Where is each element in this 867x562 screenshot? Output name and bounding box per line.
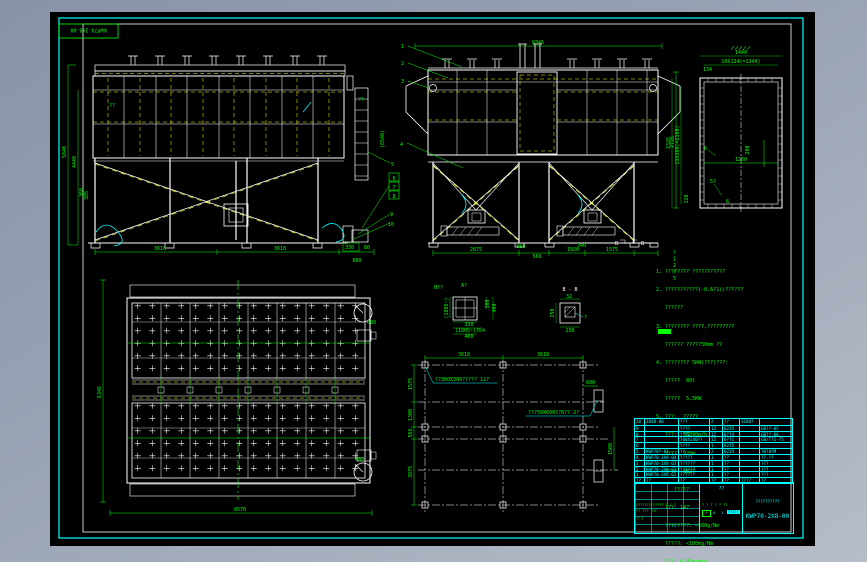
detail-a-flag: H?? [434, 285, 443, 291]
detail-a-label: A? [461, 283, 467, 289]
scale-p-box: P [702, 510, 711, 517]
margin-note-0: ? [673, 250, 676, 256]
dim-a400r: 400 [492, 303, 498, 312]
dim-120: 120 [684, 194, 690, 203]
dim-990: 990 [516, 244, 525, 250]
dim-f3618b: 3618 [537, 352, 549, 358]
note-line: 1. ???????? ??????????? [656, 269, 801, 275]
dim-1260: 1260 [735, 157, 747, 163]
dim-2875: 2875 [470, 247, 482, 253]
callout-10: 10 [388, 222, 394, 228]
dim-bb250l: 250 [550, 308, 556, 317]
signature-note-3: ? ? [637, 517, 643, 521]
dim-1500: 1500 [608, 443, 614, 455]
dim-3618-a: 3618 [154, 246, 166, 252]
anchor-note-1: ??300X300????? 12? [435, 377, 489, 383]
leader-5: 5? [710, 179, 716, 185]
cad-viewer-window: KWP70-2X8-00 5840 4440 360 385 ?? ?? (65… [0, 0, 867, 562]
sheet-count: 4 [713, 510, 715, 515]
dim-6540: (6540) [380, 130, 386, 148]
callout-5: 5 [391, 162, 394, 168]
callout-2: 2 [401, 61, 404, 67]
note-highlight-box [658, 329, 671, 334]
callout-9: 9 [390, 212, 393, 218]
dim-385: 385 [84, 191, 90, 200]
dim-bb32: 32 [566, 294, 572, 300]
dim-10x134: 10X134(=1340) [721, 59, 760, 65]
dim-f566: 566 [408, 428, 414, 437]
signature-note-2: ?? ??? P1F [636, 509, 657, 513]
dim-2326: 2326 [666, 137, 672, 149]
note-line: ?????? ?????50mm ?? [656, 342, 801, 348]
signature-note-1: 1???1?1?????? ? ? ? [636, 503, 676, 507]
note-line: 3. ???????? ????,????????? [656, 324, 801, 330]
dim-5840: 5840 [62, 146, 68, 158]
leader-d: ? [584, 315, 587, 321]
section-bb-title: B - B [562, 287, 577, 293]
dim-a300: 300 [485, 299, 491, 308]
dim-8570: 8570 [234, 507, 246, 513]
dim-f3618a: 3618 [458, 352, 470, 358]
drawing-number: KWP70-2X8-00 [744, 513, 791, 520]
dim-330: 330 [345, 245, 354, 251]
parts-list-table: 10 JB30-80 ??? 2 ?? 3100? 9 ???? 12 0235… [634, 418, 793, 484]
callout-7: 7 [392, 185, 395, 191]
dim-340: 340 [577, 243, 586, 249]
section-marker-b2: B [641, 241, 644, 247]
dim-8346: 8346 [532, 40, 544, 46]
side-note-a: ?? [109, 103, 115, 109]
note-line: ?????: <100mg/Nm [656, 541, 801, 547]
dim-200: 200 [745, 145, 751, 154]
dim-3875: 3875 [408, 466, 414, 478]
note-line: ????? 80t [656, 378, 801, 384]
callout-4: 4 [400, 142, 403, 148]
leader-6b: 6 [726, 199, 729, 205]
note-line: ????? 5.5KW [656, 396, 801, 402]
note-line: 2. ???????????(-0.6?1()?????? [656, 287, 801, 293]
dim-13x166: 13X166(=2160) [675, 125, 681, 164]
note-line: 4. ???????? 5KW(???)???: [656, 360, 801, 366]
dim-1440: 1440 [735, 50, 747, 56]
mid-green-row: ? ? ? ? ? ?? [702, 503, 727, 507]
sheet-number: 1 [721, 510, 723, 515]
dim-1575: 1575 [408, 378, 414, 390]
dim-a1805: (1805~) [444, 297, 450, 318]
section-marker-b1: B [615, 241, 618, 247]
drawing-mark: ?? [700, 486, 743, 492]
dim-680: 680 [352, 258, 361, 264]
anchor-note-2: ???50X600??6?? 2? [528, 410, 579, 416]
callout-3: 3 [401, 79, 404, 85]
dim-f680: 680 [586, 380, 595, 386]
dim-600: 600 [367, 320, 376, 326]
callout-8: 8 [392, 194, 395, 200]
dim-602: 602 [355, 457, 364, 463]
company-name: ?????????? [745, 499, 790, 504]
dim-566: 566 [532, 254, 541, 260]
signature-note-4: ?? [671, 523, 676, 528]
leader-6a: 6 [704, 146, 707, 152]
title-right-section: ?????????? KWP70-2X8-00 [742, 483, 792, 533]
dim-134: 134 [703, 67, 712, 73]
title-block: 1???1?1?????? ? ? ? ?? ??? P1F ? ? ?? ??… [634, 482, 794, 534]
title-mid-section: ?? ? ? ? ? ? ?? P 4 1 ??4?? [699, 483, 743, 533]
signature-grid [635, 483, 699, 533]
dim-a400b: 400 [464, 334, 473, 340]
note-line: ?????? [656, 305, 801, 311]
dim-6346: 6346 [97, 386, 103, 398]
dim-bb250b: 250 [565, 328, 574, 334]
callout-6: 6 [392, 176, 395, 182]
dim-1300: 1300 [408, 409, 414, 421]
dim-3618-b: 3618 [274, 246, 286, 252]
dim-4440: 4440 [72, 156, 78, 168]
dim-80: 80 [364, 245, 370, 251]
corner-label: KWP70-2X8-00 [70, 27, 106, 33]
selected-field[interactable]: ??4?? [727, 510, 740, 514]
side-note-b: ?? [358, 97, 364, 103]
dim-1575: 1575 [606, 247, 618, 253]
callout-1: 1 [401, 44, 404, 50]
